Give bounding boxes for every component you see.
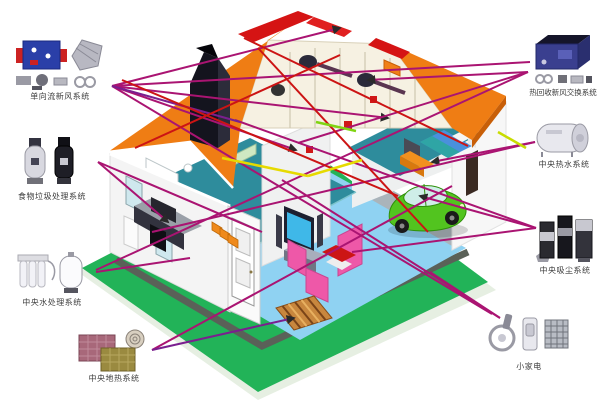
system-hot-water: 中央热水系统 [533,116,595,170]
system-vacuum: 中央吸尘系统 [533,208,597,276]
system-fresh-air: 单向流新风系统 [10,36,110,102]
garbage-disposal-icon [20,136,84,192]
system-label-water-treatment: 中央水处理系统 [22,299,82,308]
system-label-fresh-air: 单向流新风系统 [30,93,90,102]
home-systems-diagram: 单向流新风系统 食物垃圾处理系统 中央水处理系统 [0,0,600,400]
heat-recovery-unit-icon [530,28,596,88]
system-food-waste: 食物垃圾处理系统 [8,136,96,202]
vacuum-unit-icon [534,208,596,266]
system-water-treatment: 中央水处理系统 [12,250,92,308]
water-heater-icon [534,116,594,160]
system-floor-heating: 中央地热系统 [72,328,156,384]
system-label-floor-heating: 中央地热系统 [89,375,140,384]
system-heat-recovery: 热回收新风交换系统 [528,28,598,97]
system-label-heat-recovery: 热回收新风交换系统 [529,89,597,97]
floor-heating-panel-icon [75,328,153,374]
system-small-appliances: 小家电 [486,310,572,372]
system-label-small-appliances: 小家电 [516,363,542,372]
system-label-hot-water: 中央热水系统 [539,161,590,170]
water-filter-icon [16,250,88,298]
fresh-air-unit-icon [10,36,110,92]
vacuum-hose-icon [487,310,571,362]
system-label-food-waste: 食物垃圾处理系统 [18,193,86,202]
system-label-vacuum: 中央吸尘系统 [540,267,591,276]
